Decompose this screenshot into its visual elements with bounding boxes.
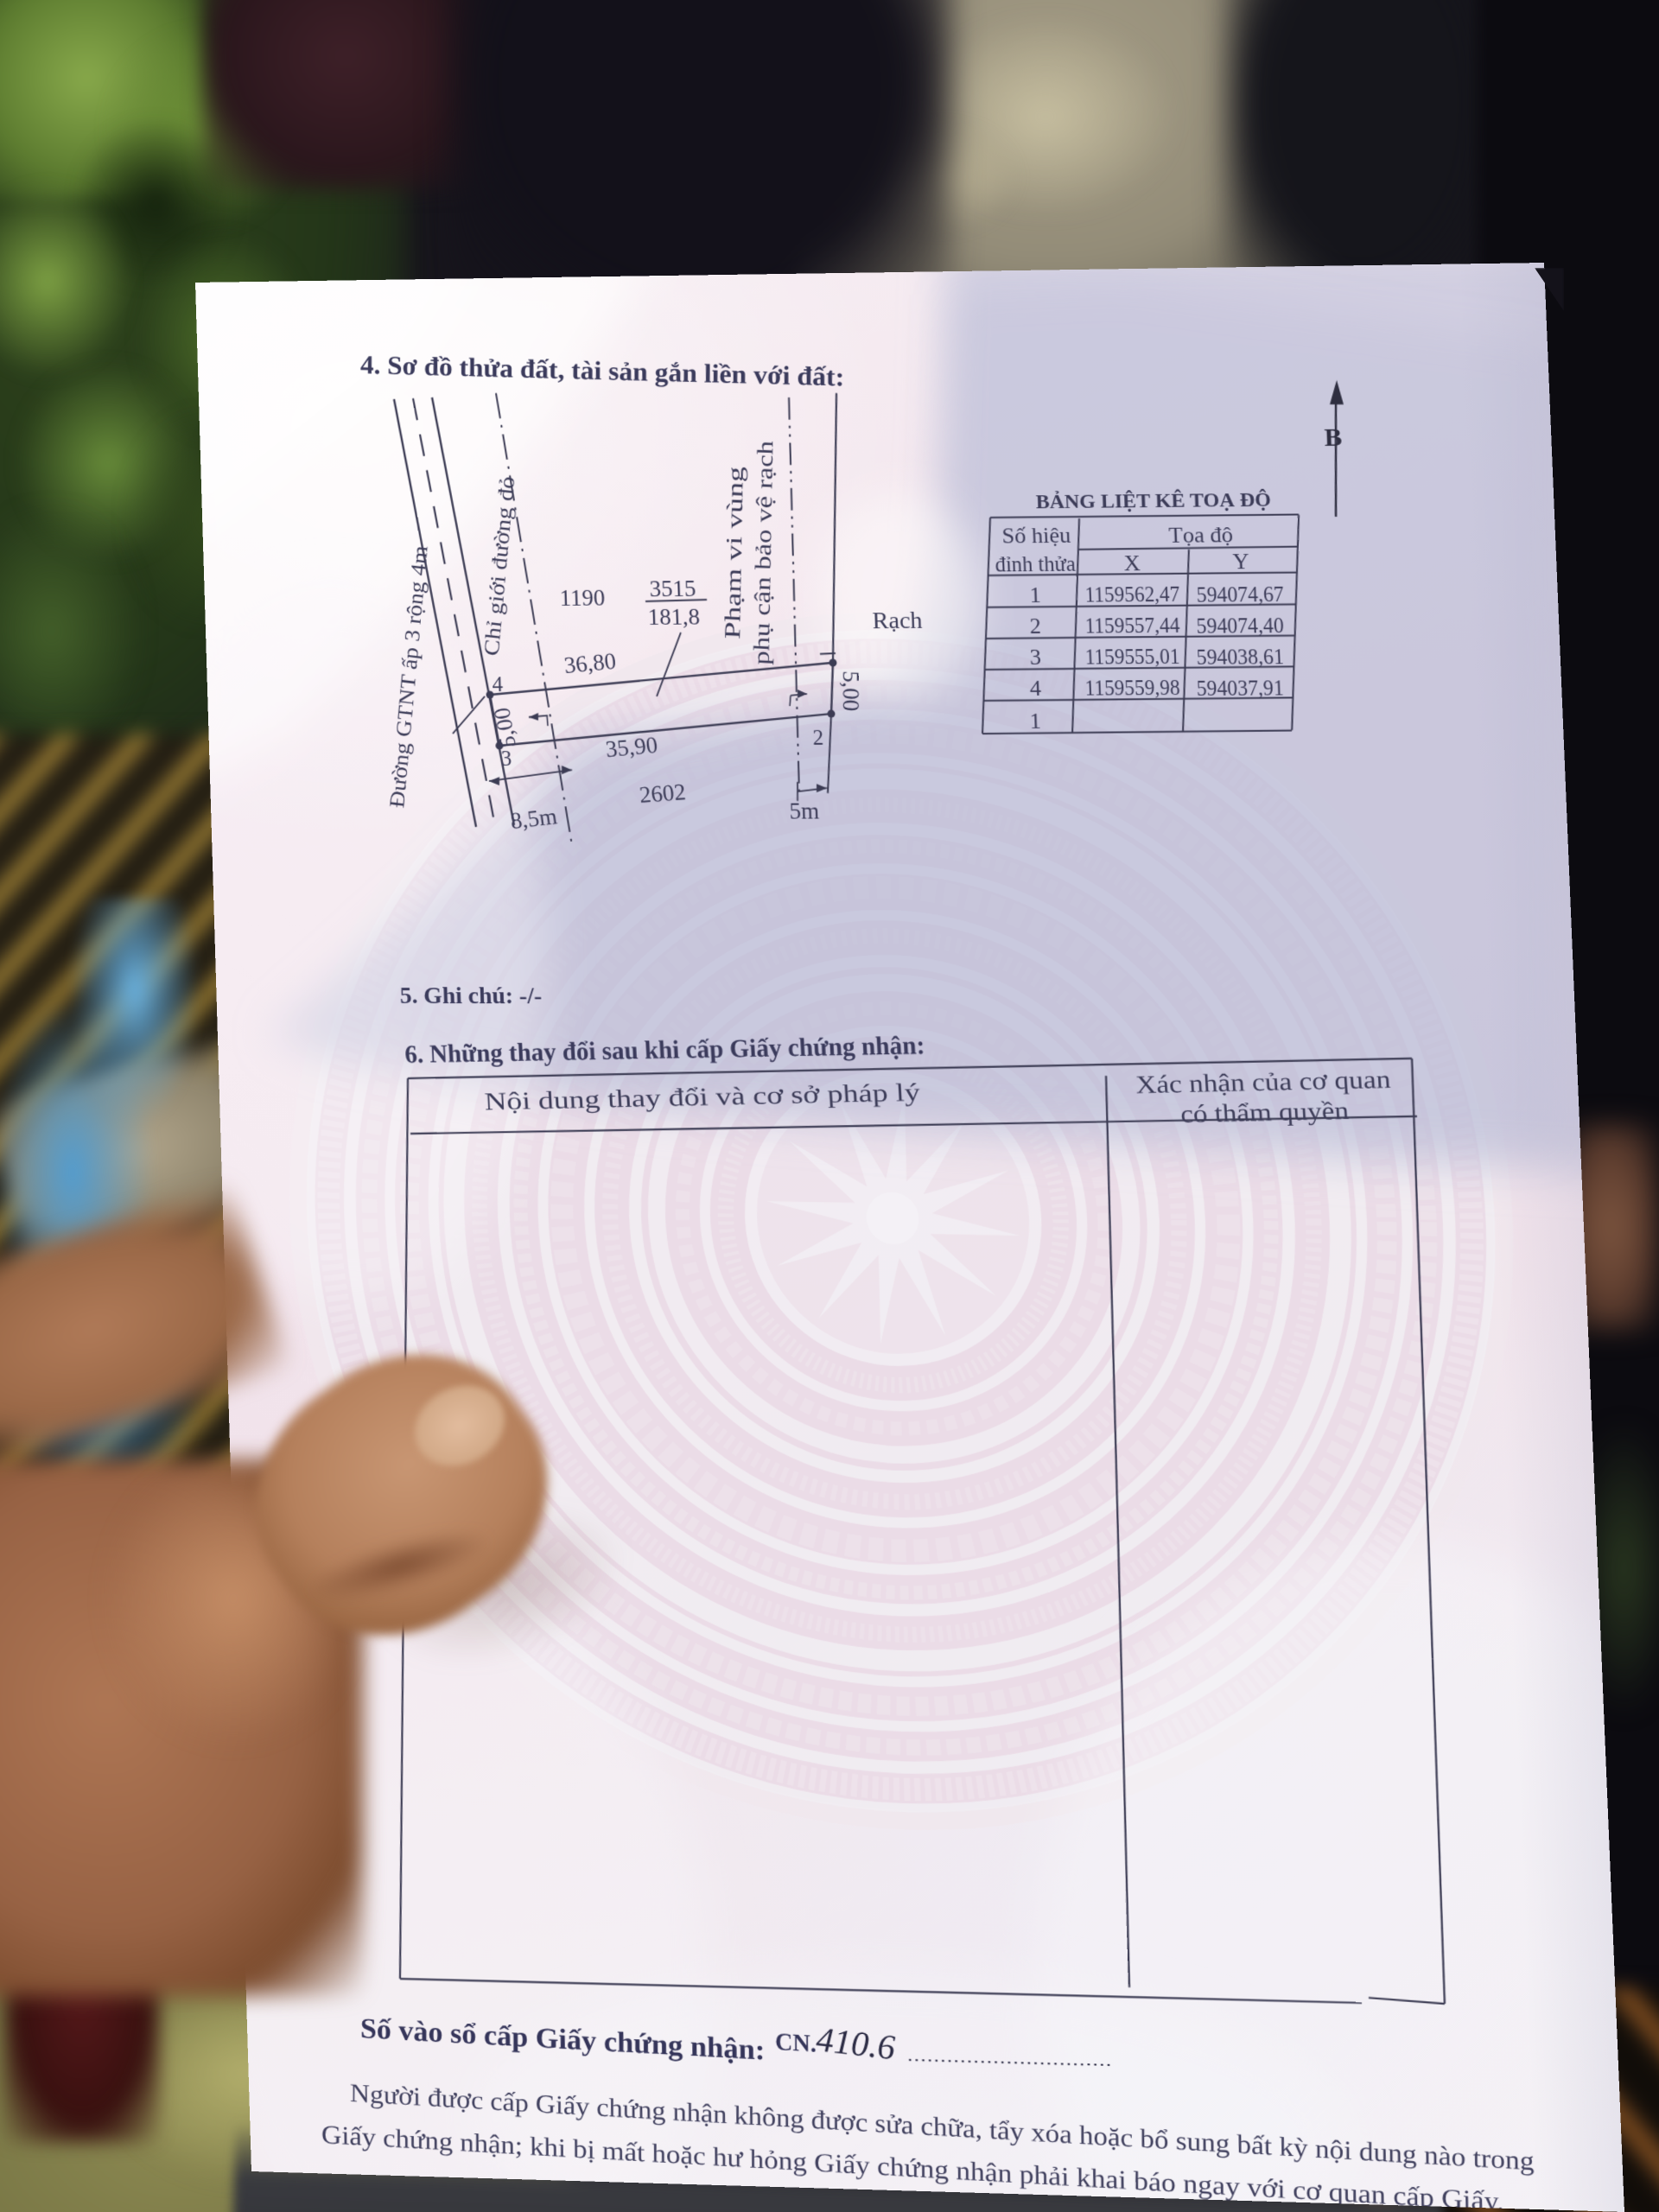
svg-text:B: B: [1324, 423, 1343, 452]
svg-text:594074,40: 594074,40: [1196, 614, 1284, 639]
svg-text:35,90: 35,90: [604, 732, 659, 762]
svg-text:3515: 3515: [649, 575, 696, 601]
svg-text:36,80: 36,80: [563, 648, 617, 678]
svg-text:594038,61: 594038,61: [1196, 645, 1284, 671]
svg-text:Rạch: Rạch: [872, 607, 923, 633]
svg-text:1159555,01: 1159555,01: [1084, 645, 1180, 671]
svg-text:3: 3: [1029, 645, 1041, 670]
svg-text:5m: 5m: [789, 798, 820, 824]
svg-text:1159562,47: 1159562,47: [1084, 583, 1180, 608]
svg-text:X: X: [1123, 551, 1141, 575]
svg-text:2: 2: [812, 726, 823, 750]
svg-text:1190: 1190: [559, 585, 605, 611]
svg-text:Xác nhận của cơ quan: Xác nhận của cơ quan: [1135, 1066, 1391, 1100]
svg-text:594074,67: 594074,67: [1196, 583, 1284, 608]
svg-text:đỉnh thửa: đỉnh thửa: [995, 552, 1076, 577]
svg-text:5,00: 5,00: [838, 671, 864, 712]
svg-text:1159559,98: 1159559,98: [1084, 677, 1180, 701]
svg-text:1: 1: [1029, 709, 1041, 734]
svg-text:CN.: CN.: [775, 2028, 817, 2057]
svg-text:phụ cận bảo vệ rạch: phụ cận bảo vệ rạch: [750, 440, 779, 665]
svg-text:8,5m: 8,5m: [509, 804, 559, 834]
svg-text:2: 2: [1029, 614, 1041, 639]
svg-text:Y: Y: [1232, 550, 1249, 574]
svg-text:Số hiệu: Số hiệu: [1001, 524, 1071, 549]
svg-text:181,8: 181,8: [647, 604, 700, 630]
svg-text:có thẩm quyền: có thẩm quyền: [1179, 1097, 1350, 1128]
svg-text:Phạm vi vùng: Phạm vi vùng: [721, 466, 748, 640]
svg-text:BẢNG LIỆT KÊ TOẠ ĐỘ: BẢNG LIỆT KÊ TOẠ ĐỘ: [1035, 487, 1271, 513]
svg-text:3: 3: [500, 747, 512, 772]
svg-text:5. Ghi chú: -/-: 5. Ghi chú: -/-: [399, 982, 542, 1008]
svg-text:1: 1: [1029, 583, 1041, 607]
svg-text:Chỉ giới đường đỏ: Chỉ giới đường đỏ: [480, 475, 519, 658]
svg-text:4: 4: [492, 673, 503, 697]
svg-text:1159557,44: 1159557,44: [1084, 614, 1180, 639]
svg-text:Tọa độ: Tọa độ: [1168, 524, 1233, 549]
svg-text:2602: 2602: [639, 779, 688, 809]
svg-text:4: 4: [1029, 677, 1042, 701]
svg-text:594037,91: 594037,91: [1196, 677, 1284, 702]
